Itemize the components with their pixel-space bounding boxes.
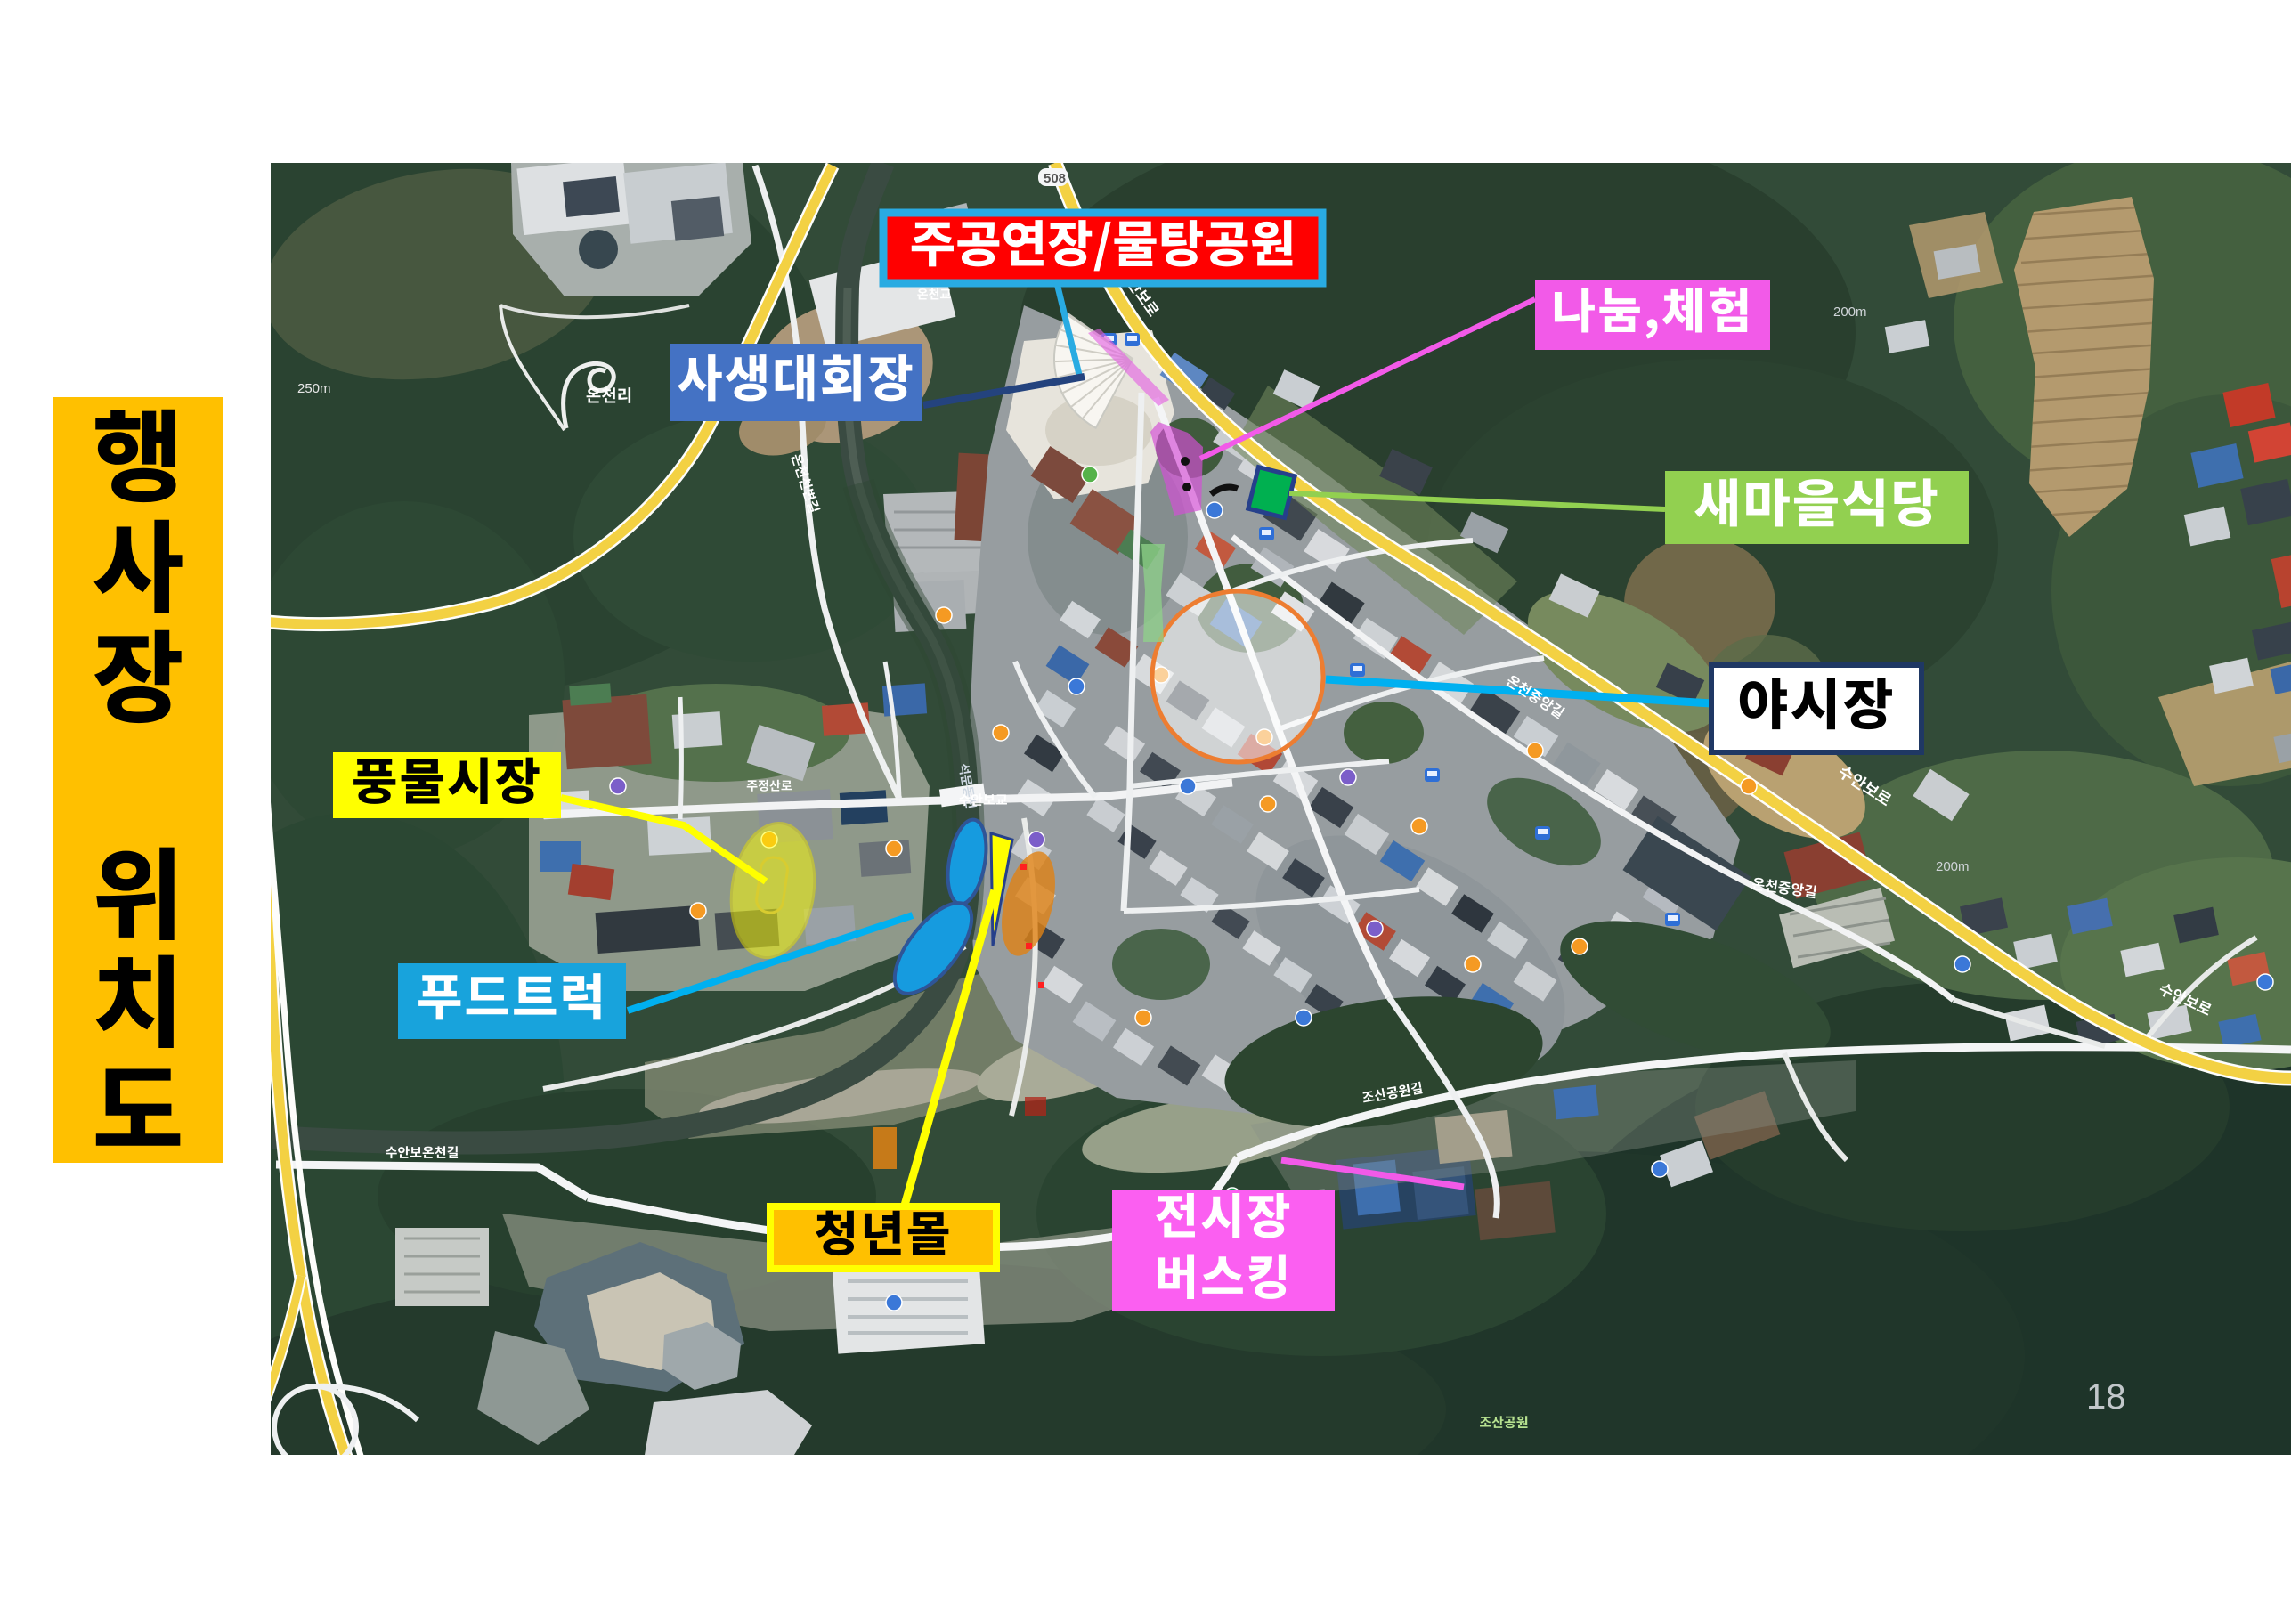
svg-text:200m: 200m [1936,859,1970,874]
svg-text:508: 508 [1044,171,1066,186]
svg-text:200m: 200m [1833,304,1867,320]
svg-text:250m: 250m [297,381,331,396]
svg-text:18: 18 [2086,1377,2126,1417]
